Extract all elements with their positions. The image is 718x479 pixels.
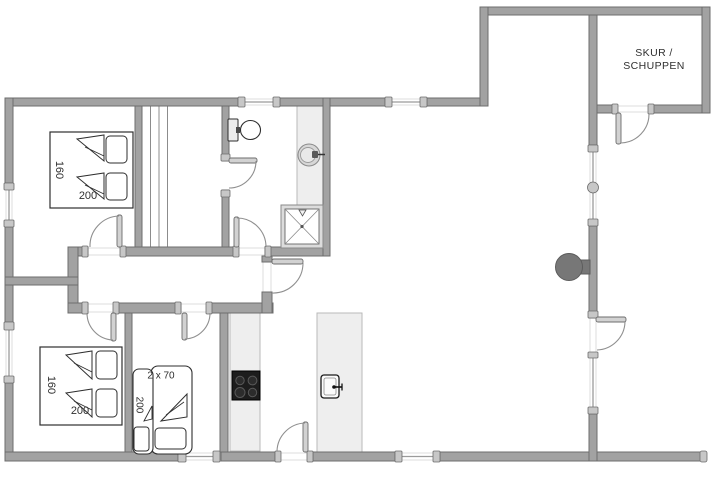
door-leaf [303,422,308,452]
door-jamb-cap [648,104,654,114]
window-cap [420,97,427,107]
door-jamb-cap [265,246,271,257]
sink-symbol [321,375,342,398]
window-cap [4,220,14,227]
door-jamb-cap [206,302,212,314]
burner-icon [248,388,256,396]
window-cap [385,97,392,107]
window-cap [588,352,598,358]
door-leaf [229,158,257,163]
pillow [96,389,117,417]
wall-segment [115,303,181,313]
door-jamb-cap [175,302,181,314]
door-jamb-cap [233,246,239,257]
wall-segment [221,452,275,461]
door-jamb-cap [275,451,281,462]
wall-segment [480,7,488,106]
basin-tap-icon [312,151,318,158]
wall-segment [135,106,142,252]
cooktop-symbol [232,371,260,400]
pillow [134,427,149,451]
window-cap [4,183,14,190]
window-post [588,182,599,193]
wall-segment [323,98,330,256]
wall-segment [313,452,395,461]
bed-length-label: 200 [79,190,97,202]
wall-segment [5,277,78,285]
door-jamb-cap [221,190,230,197]
door-jamb-cap [82,302,88,314]
door-leaf [182,313,187,340]
shed-label-line2: SCHUPPEN [623,60,685,72]
wall-segment [280,98,385,106]
pillow [106,173,127,200]
wall-segment [427,98,487,106]
burner-icon [235,388,245,398]
wall-segment [5,227,13,322]
wall-segment [652,105,702,113]
shower-symbol [281,205,323,248]
burner-icon [236,376,244,384]
wall-segment [589,414,597,461]
wall-segment [5,98,13,183]
bed-width-label: 160 [53,161,65,179]
wall-segment [262,292,272,313]
window-cap [4,376,14,383]
bunk-beds-label: 2 x 70 [147,371,175,382]
wall-end-cap [700,451,707,462]
pillow [106,136,127,163]
bed-width-label: 160 [45,376,57,394]
window-cap [588,145,598,152]
door-leaf [272,259,303,264]
shed-label-line1: SKUR / [635,47,672,59]
door-leaf [117,215,122,247]
wall-segment [589,15,597,145]
door-jamb-cap [82,246,88,257]
door-jamb-cap [120,246,126,257]
window-cap [273,97,280,107]
toilet-flush-icon [236,127,240,133]
wall-segment [122,247,238,256]
window-cap [588,407,598,414]
wall-segment [480,7,710,15]
wall-segment [440,452,705,461]
window-cap [4,322,14,330]
door-jamb-cap [612,104,618,114]
wall-segment [5,98,238,106]
bunk-length-label: 200 [134,397,145,414]
pillow [96,351,117,379]
wall-segment [125,313,132,452]
wall-segment [702,7,710,113]
bed-length-label: 200 [71,405,89,417]
door-jamb-cap [113,302,119,314]
door-leaf [111,313,116,341]
window-cap [433,451,440,462]
window-cap [238,97,245,107]
door-leaf [596,317,626,322]
toilet-symbol [228,119,261,141]
door-jamb-cap [307,451,313,462]
window-cap [213,451,220,462]
floor-plan-page: 160 200 160 200 2 x 70 200 SKUR / SCHUPP… [0,0,718,479]
window-cap [395,451,402,462]
floor-plan-canvas: 160 200 160 200 2 x 70 200 SKUR / SCHUPP… [0,0,718,479]
wall-segment [222,190,229,252]
wall-segment [5,452,178,461]
burner-icon [248,376,257,385]
door-leaf [616,113,621,144]
door-leaf [234,217,239,247]
window-cap [588,219,598,226]
pillow [155,428,186,449]
wall-segment [220,313,228,452]
wall-segment [5,383,13,461]
